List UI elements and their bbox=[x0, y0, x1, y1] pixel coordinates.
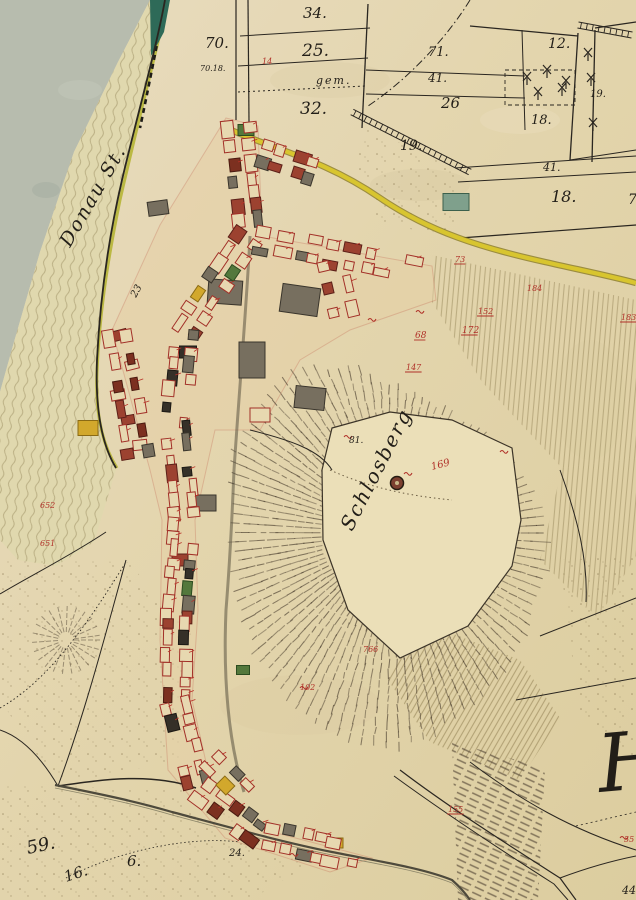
parcel-number-label: 55 bbox=[624, 835, 634, 844]
building bbox=[182, 433, 191, 451]
building bbox=[325, 836, 341, 850]
parcel-number-label: 41. bbox=[427, 71, 447, 85]
building bbox=[78, 421, 98, 436]
building bbox=[180, 649, 193, 661]
building bbox=[279, 843, 291, 855]
building bbox=[241, 137, 255, 150]
cadastral-map: 70.70.18.34.25.32.71.41.2612.19.18.41.18… bbox=[0, 0, 636, 900]
building bbox=[255, 225, 271, 239]
building bbox=[317, 261, 330, 273]
parcel-number-label: 71. bbox=[428, 45, 449, 60]
building bbox=[326, 239, 339, 251]
building bbox=[101, 329, 115, 348]
parcel-number-label: 152 bbox=[478, 307, 493, 316]
parcel-number-label: 651 bbox=[40, 539, 55, 548]
parcel-number-label: 73 bbox=[455, 255, 465, 264]
building bbox=[279, 283, 321, 316]
building bbox=[119, 329, 133, 343]
building bbox=[237, 666, 250, 675]
parcel-number-label: 70.18. bbox=[200, 64, 225, 73]
building bbox=[169, 357, 178, 369]
parcel-number-label: 24. bbox=[228, 848, 245, 859]
building bbox=[228, 176, 238, 188]
place-name-label: gem. bbox=[316, 74, 351, 87]
building bbox=[187, 492, 197, 507]
building bbox=[264, 822, 280, 835]
building bbox=[120, 448, 134, 460]
building bbox=[163, 662, 171, 676]
parcel-number-label: 172 bbox=[462, 326, 479, 336]
parcel-number-label: 652 bbox=[40, 501, 55, 510]
building bbox=[220, 120, 234, 139]
building bbox=[137, 423, 147, 437]
parcel-number-label: 41. bbox=[542, 161, 561, 174]
parcel-number-label: 32. bbox=[300, 99, 327, 119]
building bbox=[167, 578, 176, 596]
building bbox=[182, 355, 194, 373]
building bbox=[239, 342, 265, 378]
parcel-number-label: 44. bbox=[621, 884, 636, 897]
building bbox=[162, 402, 171, 412]
parcel-number-label: 184 bbox=[527, 284, 542, 293]
building bbox=[303, 828, 315, 840]
parcel-number-label: 183 bbox=[621, 313, 636, 322]
building bbox=[182, 661, 193, 678]
parcel-number-label: 18. bbox=[551, 187, 576, 206]
parcel-number-label: 766 bbox=[363, 645, 378, 654]
building bbox=[160, 647, 169, 662]
building bbox=[294, 385, 326, 410]
building bbox=[178, 630, 188, 645]
building bbox=[187, 507, 200, 518]
parcel-number-label: 70. bbox=[205, 34, 229, 52]
parcel-number-label: 19. bbox=[590, 89, 606, 100]
building bbox=[161, 438, 172, 449]
map-canvas: 70.70.18.34.25.32.71.41.2612.19.18.41.18… bbox=[0, 0, 636, 900]
building bbox=[167, 517, 179, 531]
parcel-number-label: 26 bbox=[440, 94, 461, 112]
building bbox=[126, 353, 135, 365]
building bbox=[179, 616, 189, 632]
building bbox=[185, 374, 196, 385]
building bbox=[188, 330, 199, 341]
building bbox=[253, 210, 263, 228]
building bbox=[164, 566, 174, 578]
building bbox=[322, 282, 334, 295]
building bbox=[113, 380, 124, 393]
parcel-number-label: 155 bbox=[448, 805, 463, 814]
parcel-number-label: 102 bbox=[300, 683, 315, 692]
parcel-number-label: 6. bbox=[127, 852, 141, 870]
building bbox=[170, 539, 179, 557]
building bbox=[161, 380, 175, 397]
building bbox=[283, 823, 297, 836]
parcel-number-label: 70 bbox=[628, 192, 636, 208]
parcel-number-label: 68 bbox=[415, 331, 427, 341]
building bbox=[147, 200, 169, 217]
building bbox=[163, 688, 172, 703]
building bbox=[163, 629, 172, 645]
parcel-number-label: 147 bbox=[406, 363, 422, 372]
building bbox=[134, 398, 147, 415]
building bbox=[187, 543, 198, 555]
parcel-number-label: 14 bbox=[262, 57, 272, 66]
parcel-number-label: 81. bbox=[349, 436, 363, 446]
building bbox=[308, 234, 323, 245]
building bbox=[185, 568, 194, 579]
parcel-number-label: 25. bbox=[301, 41, 329, 61]
building bbox=[130, 377, 139, 390]
parcel-number-label: 34. bbox=[303, 4, 327, 22]
building bbox=[163, 619, 174, 629]
hachured-slope bbox=[452, 742, 545, 900]
building bbox=[223, 140, 235, 153]
parcel-number-label: 18. bbox=[531, 113, 552, 128]
building bbox=[183, 713, 195, 725]
building bbox=[344, 260, 355, 271]
parcel-number-label: 12. bbox=[548, 36, 570, 52]
building bbox=[182, 581, 193, 597]
building bbox=[443, 194, 469, 211]
parcel-number-label: 19. bbox=[400, 138, 422, 154]
building bbox=[250, 408, 270, 422]
building bbox=[142, 443, 155, 458]
building bbox=[365, 248, 376, 260]
building bbox=[229, 158, 242, 172]
